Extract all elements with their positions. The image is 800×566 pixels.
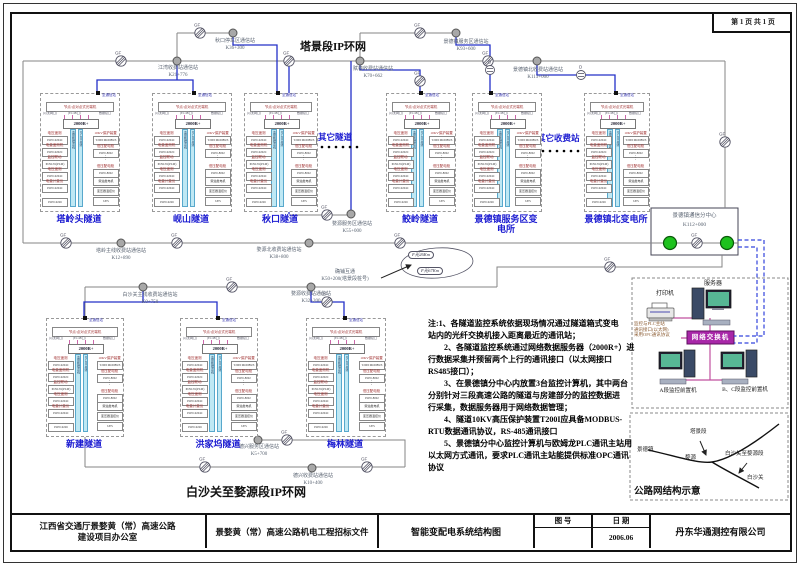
tunnel-name-label: 洪家坞隧道 — [168, 439, 268, 449]
svg-text:GF: GF — [321, 205, 328, 210]
svg-text:GF: GF — [171, 233, 178, 238]
top-ring-title: 塔景段IP环网 — [300, 38, 366, 54]
station-node — [347, 210, 355, 218]
station-node — [305, 239, 313, 247]
sketch-wy-label: 婺源 — [685, 455, 696, 462]
svg-text:GF: GF — [199, 457, 206, 462]
optical-fiber-symbol: GF — [226, 277, 237, 293]
station-label: 塔岭主线收费站通信站K12+890 — [86, 249, 156, 262]
svg-text:GF: GF — [691, 233, 698, 238]
optical-fiber-symbol: GF — [60, 233, 71, 249]
sketch-bsg-label: 白沙关 — [747, 475, 764, 482]
station-node — [307, 283, 315, 291]
tunnel-name-label: 梅林隧道 — [294, 439, 396, 449]
optical-fiber-symbol: GF — [604, 257, 615, 273]
station-node — [117, 239, 125, 247]
ellipsis-dot — [549, 150, 552, 153]
svg-text:GF: GF — [719, 132, 726, 137]
tunnel-rack: 至通信站节点/点对点式光端机(以太网口)(E1/4B口)数据接口2000R+监控… — [40, 93, 120, 212]
drawing-sheet: GFGFGFGFGFGFGFGFGFGFGFGFGFGFGFGFGFGFDD 第… — [0, 0, 800, 566]
svg-text:D: D — [579, 65, 583, 70]
other-tunnels-label: 其它隧道 — [318, 131, 352, 143]
station-node — [452, 29, 460, 37]
optical-node — [721, 237, 734, 250]
svg-text:GF: GF — [361, 457, 368, 462]
tunnel-name-label: 秋口隧道 — [232, 214, 328, 224]
ellipsis-dot — [356, 146, 359, 149]
drop-symbol: D — [577, 65, 586, 80]
title-block-document: 景婺黄（常）高速公路机电工程招标文件 — [205, 515, 377, 548]
optical-fiber-symbol: GF — [414, 71, 425, 87]
station-node — [533, 57, 541, 65]
title-block-drawing-title: 智能变配电系统结构图 — [377, 515, 533, 548]
workstation-bc-icon — [721, 350, 757, 384]
optical-node — [664, 237, 677, 250]
ellipsis-dot — [342, 146, 345, 149]
tunnel-rack: 至通信站节点/点对点式光端机(以太网口)(E1/4B口)数据接口2000R+监控… — [584, 93, 650, 212]
optical-fiber-symbol: GF — [719, 132, 730, 148]
svg-text:GF: GF — [394, 233, 401, 238]
workstation-bc-label: B、C段监控前置机 — [716, 387, 774, 394]
svg-text:GF: GF — [194, 23, 201, 28]
station-label: 婺源北收费站通信站K38+800 — [246, 248, 312, 261]
station-label: 景德镇服务区通信站K93+600 — [430, 40, 502, 53]
station-label: 赋春收费站通信站K70+662 — [341, 67, 405, 80]
svg-text:GF: GF — [226, 277, 233, 282]
station-label: 白沙关主线收费站通信站K0+750 — [111, 293, 189, 306]
server-label: 服务器 — [696, 281, 730, 288]
transfer-point-label: 确铺互通 K50+200(塔景段桩号) — [306, 270, 384, 283]
server-icon — [692, 288, 731, 325]
station-label: 婺源收费站通信站K32+200 — [280, 292, 342, 305]
printer-icon — [647, 303, 674, 321]
svg-text:GF: GF — [414, 23, 421, 28]
sketch-seg-label: 白沙关至婺源段 — [725, 451, 764, 458]
fiber-length-tag: F光26Km — [408, 251, 434, 259]
ellipsis-dot — [328, 146, 331, 149]
tunnel-rack: 至通信站节点/点对点式光端机(以太网口)(E1/4B口)数据接口2000R+监控… — [244, 93, 318, 212]
tunnel-rack: 至通信站节点/点对点式光端机(以太网口)(E1/4B口)数据接口2000R+监控… — [386, 93, 456, 212]
tunnel-rack: 至通信站节点/点对点式光端机(以太网口)(E1/4B口)数据接口2000R+监控… — [306, 318, 386, 437]
tunnel-name-label: 新建隧道 — [34, 439, 134, 449]
tunnel-name-label: 塔岭头隧道 — [28, 214, 130, 224]
station-label: 秋口停车区通信站K36+300 — [203, 39, 267, 52]
sketch-title: 公路网结构示意 — [634, 483, 701, 497]
title-block-owner: 江西省交通厅景婺黄（常）高速公路 建设项目办公室 — [10, 515, 205, 548]
workstation-a-icon — [659, 350, 695, 384]
notes-block: 注:1、各隧道监控系统依据现场情况通过隧道箱式变电站内的光纤交换机接入距离最近的… — [428, 318, 642, 474]
station-node — [356, 57, 364, 65]
sketch-tj-label: 塔景段 — [690, 429, 707, 436]
station-node — [173, 57, 181, 65]
comm-subcenter-name: 景德镇通信分中心 — [652, 213, 737, 220]
station-node — [229, 29, 237, 37]
ellipsis-dot — [335, 146, 338, 149]
title-block: 江西省交通厅景婺黄（常）高速公路 建设项目办公室 景婺黄（常）高速公路机电工程招… — [10, 513, 790, 548]
workstation-a-label: A段监控前置机 — [652, 388, 704, 395]
svg-text:GF: GF — [414, 71, 421, 76]
svg-text:GF: GF — [281, 430, 288, 435]
tunnel-name-label: 鲛岭隧道 — [374, 214, 466, 224]
title-block-company: 丹东华通测控有限公司 — [649, 515, 790, 548]
sheet-number-box: 第 1 页 共 1 页 — [712, 12, 792, 33]
svg-text:GF: GF — [115, 51, 122, 56]
drop-line — [97, 80, 193, 93]
optical-fiber-symbol: GF — [194, 23, 205, 39]
tunnel-rack: 至通信站节点/点对点式光端机(以太网口)(E1/4B口)数据接口2000R+监控… — [152, 93, 232, 212]
tunnel-name-label: 岘山隧道 — [140, 214, 242, 224]
station-label: 德兴收费站通信站K10+400 — [280, 474, 346, 487]
tunnel-name-label: 景德镇服务区变电所 — [474, 214, 538, 234]
svg-text:GF: GF — [283, 51, 290, 56]
optical-fiber-symbol: GF — [361, 457, 372, 473]
tunnel-rack: 至通信站节点/点对点式光端机(以太网口)(E1/4B口)数据接口2000R+监控… — [472, 93, 542, 212]
ellipsis-dot — [577, 150, 580, 153]
optical-fiber-symbol: GF — [115, 51, 126, 67]
tunnel-name-label: 景德镇北变电所 — [572, 214, 660, 224]
comm-subcenter-km: K112+000 — [652, 222, 737, 229]
transfer-arrow — [381, 265, 411, 278]
network-switch-label: 网络交换机 — [687, 332, 734, 344]
station-label: 江湾收费站通信站K21+776 — [147, 66, 209, 79]
ellipsis-dot — [321, 146, 324, 149]
optical-fiber-symbol: GF — [281, 430, 292, 446]
optical-fiber-symbol: GF — [394, 233, 405, 249]
ellipsis-dot — [570, 150, 573, 153]
optical-fiber-symbol: GF — [283, 51, 294, 67]
optical-fiber-symbol: GF — [199, 457, 210, 473]
wiring-diagram: GFGFGFGFGFGFGFGFGFGFGFGFGFGFGFGFGFGFDD — [0, 0, 800, 566]
svg-text:GF: GF — [604, 257, 611, 262]
tunnel-rack: 至通信站节点/点对点式光端机(以太网口)(E1/4B口)数据接口2000R+监控… — [46, 318, 124, 437]
ellipsis-dot — [542, 150, 545, 153]
fiber-length-tag: F光67Km — [417, 267, 443, 275]
station-label: 景德镇北收费站通信站K113+000 — [501, 68, 575, 81]
svg-text:GF: GF — [60, 233, 67, 238]
ellipsis-dot — [349, 146, 352, 149]
printer-label: 打印机 — [648, 291, 682, 298]
ellipsis-dot — [563, 150, 566, 153]
uplink-dashed-line — [734, 247, 757, 343]
other-tolls-label: 其它收费站 — [537, 132, 580, 144]
tunnel-rack: 至通信站节点/点对点式光端机(以太网口)(E1/4B口)数据接口2000R+监控… — [180, 318, 258, 437]
ellipsis-dot — [556, 150, 559, 153]
title-block-date: 日 期 2006.06 — [591, 515, 649, 548]
station-node — [308, 464, 316, 472]
optical-fiber-symbol: GF — [414, 23, 425, 39]
title-block-drawing-no: 图 号 — [533, 515, 591, 548]
optical-fiber-symbol: GF — [171, 233, 182, 249]
station-label: 婺源服务区通信站K55+000 — [322, 222, 382, 235]
station-node — [139, 283, 147, 291]
